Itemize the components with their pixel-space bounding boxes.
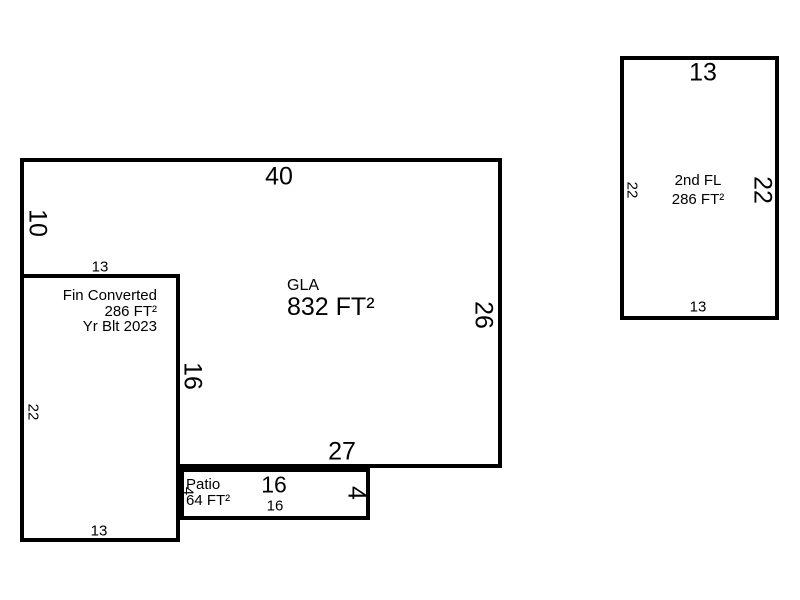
gla-dim-left: 10: [25, 209, 50, 237]
gla-dim-top: 40: [265, 165, 293, 190]
patio-dim-bottom: 16: [267, 499, 284, 514]
gla-dim-notch: 16: [180, 362, 205, 390]
second-floor-text: 2nd FL 286 FT²: [672, 171, 725, 209]
fin-converted-line2: 286 FT²: [63, 304, 157, 320]
second-floor-dim-top: 13: [689, 61, 717, 86]
fin-converted-dim-top: 13: [92, 260, 109, 275]
fin-converted-dim-bottom: 13: [91, 524, 108, 539]
fin-converted-line1: Fin Converted: [63, 288, 157, 304]
gla-dim-right: 26: [471, 301, 496, 329]
second-floor-area: 286 FT²: [672, 190, 725, 209]
patio-dim-left: 4: [181, 487, 196, 495]
patio-area: 64 FT²: [186, 493, 230, 509]
gla-dim-bottom: 27: [328, 440, 356, 465]
fin-converted-line3: Yr Blt 2023: [63, 319, 157, 335]
floorplan-sketch: 40 10 26 27 16 GLA 832 FT² 13 22 13 Fin …: [0, 0, 800, 600]
gla-label: GLA: [287, 277, 375, 294]
second-floor-dim-bottom: 13: [690, 300, 707, 315]
fin-converted-dim-left: 22: [26, 404, 41, 421]
second-floor-dim-left: 22: [625, 182, 640, 199]
fin-converted-text: Fin Converted 286 FT² Yr Blt 2023: [63, 288, 157, 335]
gla-area: 832 FT²: [287, 294, 375, 320]
second-floor-label: 2nd FL: [672, 171, 725, 190]
patio-dim-top: 16: [261, 474, 287, 497]
patio-dim-right: 4: [344, 486, 369, 500]
second-floor-dim-right: 22: [750, 176, 775, 204]
gla-text: GLA 832 FT²: [287, 277, 375, 320]
